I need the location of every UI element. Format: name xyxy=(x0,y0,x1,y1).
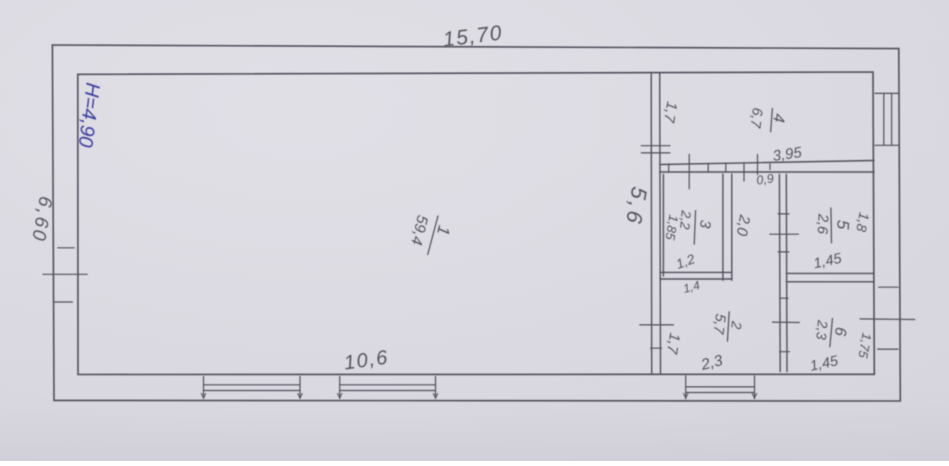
svg-text:2,6: 2,6 xyxy=(814,213,831,236)
svg-text:5: 5 xyxy=(833,219,852,230)
svg-text:1,8: 1,8 xyxy=(853,211,872,233)
svg-text:6,7: 6,7 xyxy=(746,107,764,130)
svg-text:5,7: 5,7 xyxy=(710,313,728,336)
svg-text:6: 6 xyxy=(831,326,849,336)
svg-text:0,9: 0,9 xyxy=(755,171,774,187)
svg-text:2,3: 2,3 xyxy=(813,319,831,341)
